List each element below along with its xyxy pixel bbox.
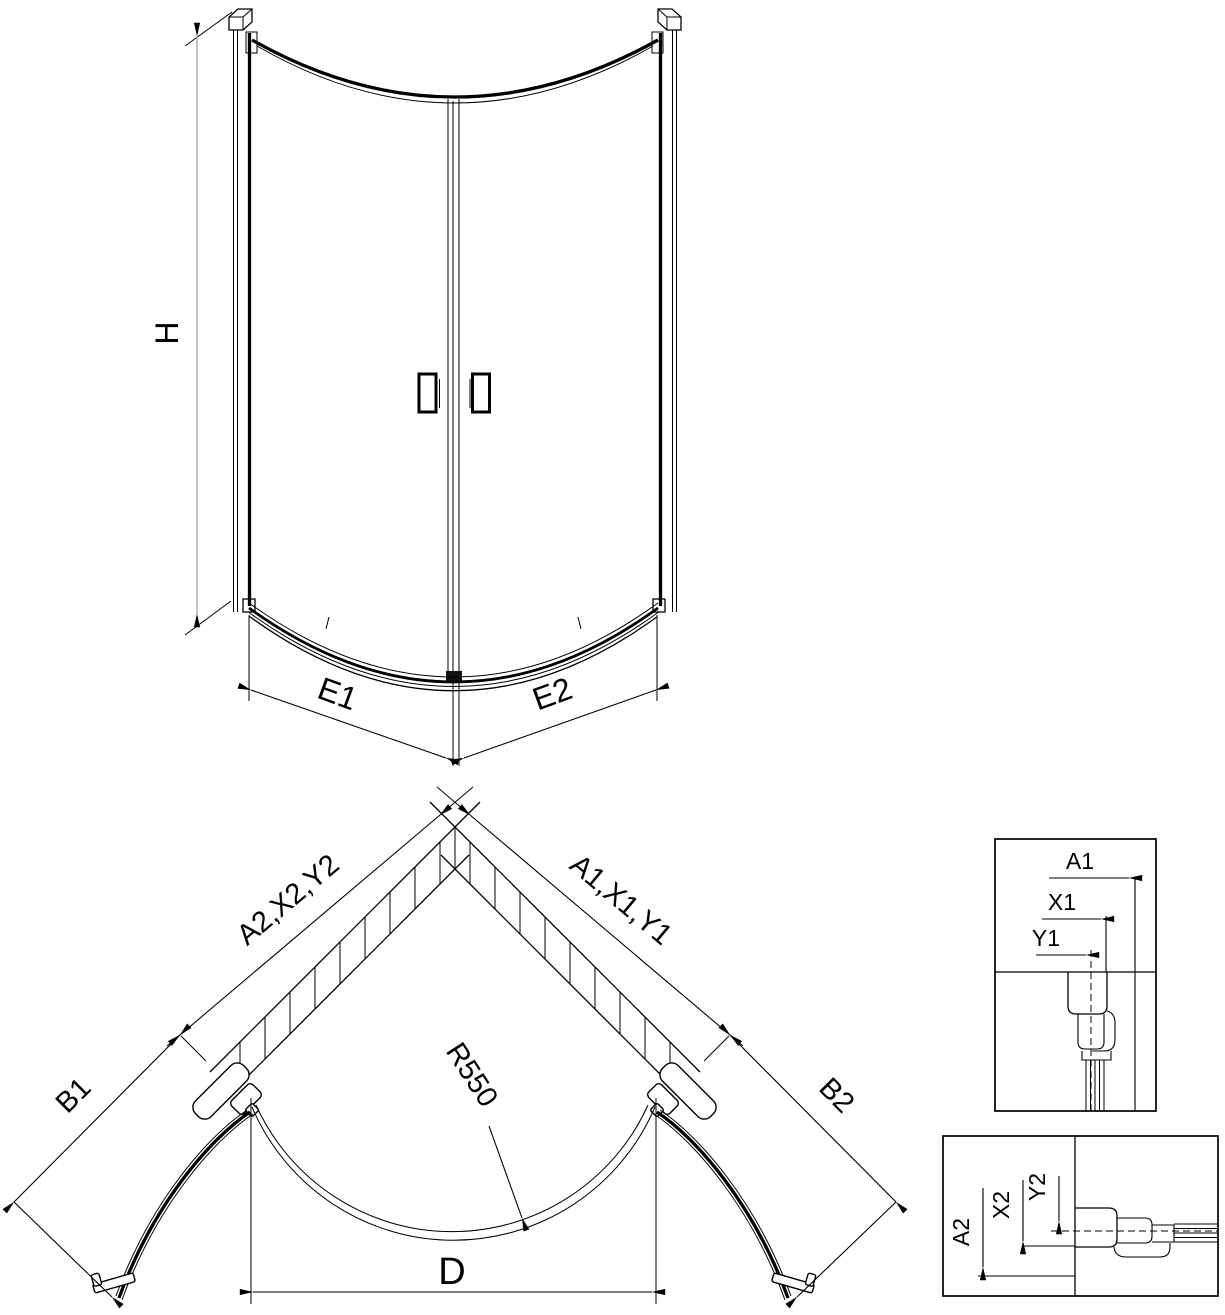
- a1-label: A1: [1066, 848, 1094, 874]
- d-label: D: [438, 1251, 465, 1293]
- y2-label: Y2: [1024, 1173, 1050, 1201]
- height-label: H: [149, 321, 185, 344]
- center-bottom-guide: [446, 671, 462, 681]
- right-door-handle: [470, 374, 490, 412]
- x1-label: X1: [1048, 889, 1076, 915]
- x2-label: X2: [988, 1191, 1014, 1219]
- background: [0, 0, 1225, 1315]
- shower-enclosure-drawing: H E1 E2: [0, 0, 1225, 1315]
- technical-drawing-page: H E1 E2: [0, 0, 1225, 1315]
- y1-label: Y1: [1032, 925, 1060, 951]
- a2-label: A2: [948, 1218, 974, 1246]
- left-door-handle: [419, 374, 440, 412]
